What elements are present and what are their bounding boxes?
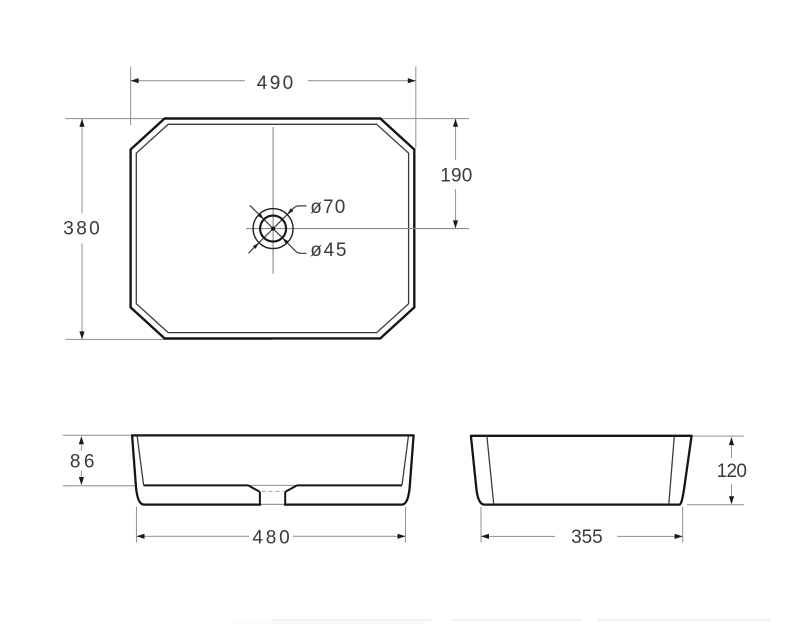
svg-text:ø70: ø70 — [310, 197, 345, 218]
svg-text:480: 480 — [252, 527, 289, 548]
svg-text:190: 190 — [440, 166, 472, 187]
svg-text:ø45: ø45 — [310, 240, 346, 261]
svg-text:490: 490 — [257, 73, 294, 94]
svg-text:380: 380 — [63, 218, 100, 239]
svg-text:120: 120 — [717, 461, 747, 482]
svg-text:86: 86 — [70, 451, 95, 472]
svg-text:355: 355 — [571, 527, 603, 548]
